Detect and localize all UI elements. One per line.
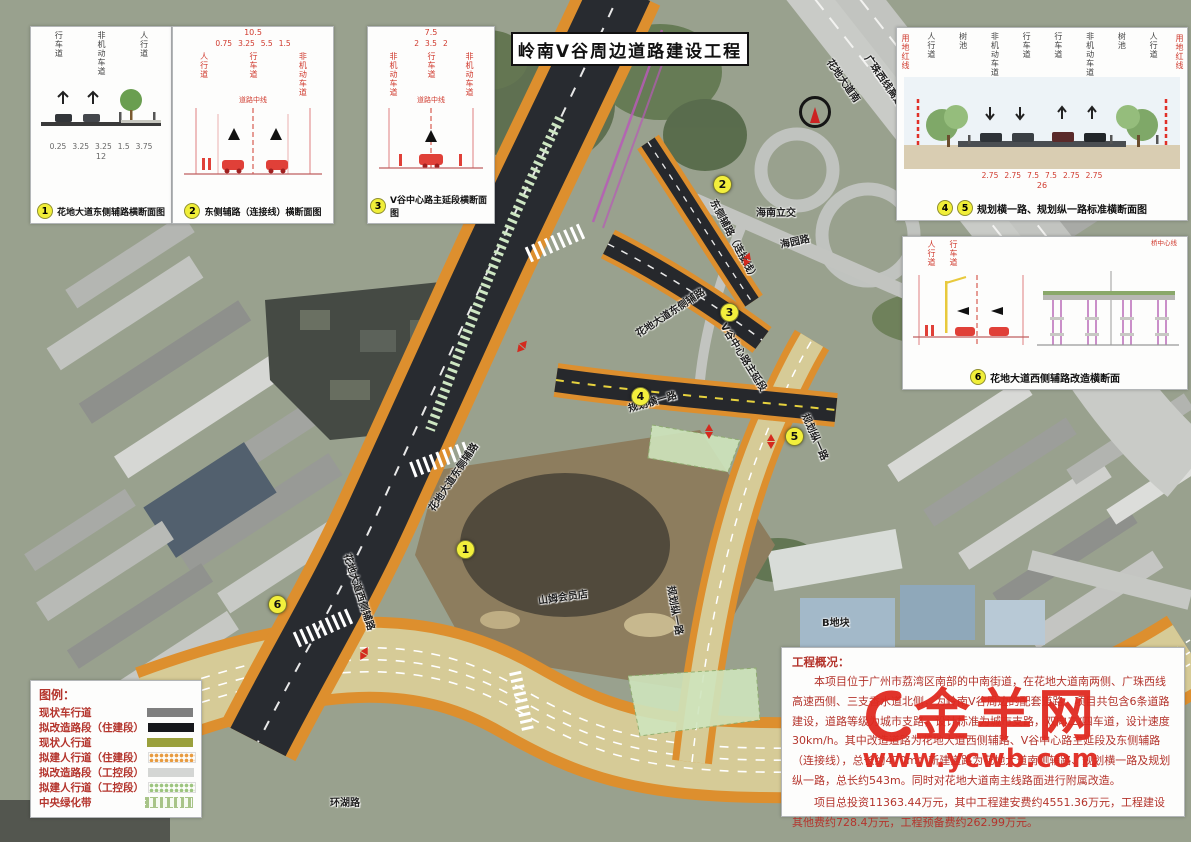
lane-label: 行车道 [1022, 32, 1030, 77]
section6-drawing [911, 267, 1179, 359]
legend-item-label: 现状车行道 [39, 705, 92, 720]
dimension-value: 7.5 [1045, 171, 1057, 180]
lane-label: 人行道 [927, 32, 935, 77]
section3-drawing [375, 104, 487, 178]
road-label: B地块 [822, 614, 850, 629]
diagram-number-badge: 5 [957, 200, 973, 216]
overview-title: 工程概况： [792, 654, 1174, 670]
section2-lane-labels: 人行道行车道非机动车道 [173, 48, 333, 97]
lane-label: 非机动车道 [1086, 32, 1094, 77]
dimension-value: 5.5 [261, 39, 273, 48]
red-arrow-icon [767, 430, 775, 453]
legend-item: 拟建人行道（住建段） [39, 750, 193, 765]
map-marker: 4 [631, 387, 650, 406]
dimension-value: 1.5 [279, 39, 291, 48]
watermark-name: 金羊网 [914, 689, 1100, 745]
lane-label: 行车道 [249, 52, 257, 97]
legend-panel: 图例： 现状车行道 拟改造路段（住建段） 现状人行道 [30, 680, 202, 818]
legend-item: 拟改造路段（住建段） [39, 720, 193, 735]
cross-section-card-45: 用地红线 人行道树池非机动车道行车道行车道非机动车道树池人行道 用地红线 [896, 27, 1188, 221]
dimension-value: 0.25 [50, 142, 67, 151]
diagram-number-badge: 6 [970, 369, 986, 385]
legend-item-label: 拟改造路段（住建段） [39, 720, 144, 735]
legend-item-label: 现状人行道 [39, 735, 92, 750]
cross-section-card-2: 10.5 0.753.255.51.5 人行道行车道非机动车道 道路中线 2 东… [172, 26, 334, 224]
lane-label: 树池 [1117, 32, 1125, 77]
lane-label: 非机动车道 [298, 52, 306, 97]
road-label: 环湖路 [330, 794, 360, 809]
legend-item: 拟建人行道（工控段） [39, 780, 193, 795]
diagram-number-badge: 2 [184, 203, 200, 219]
legend-item-swatch [148, 768, 194, 777]
legend-item: 中央绿化带 [39, 795, 193, 810]
lane-label: 非机动车道 [389, 52, 397, 97]
dimension-value: 0.75 [215, 39, 232, 48]
red-line-label: 用地红线 [1175, 34, 1183, 70]
legend-item: 拟改造路段（工控段） [39, 765, 193, 780]
lane-label: 行车道 [54, 31, 62, 76]
diagram-number-badge: 4 [937, 200, 953, 216]
lane-label: 行车道 [1054, 32, 1062, 77]
legend-item-swatch [147, 738, 193, 747]
legend-item-label: 中央绿化带 [39, 795, 92, 810]
red-arrow-icon [705, 420, 713, 443]
legend-item-label: 拟建人行道（工控段） [39, 780, 144, 795]
section45-drawing [904, 77, 1180, 169]
lane-label: 行车道 [427, 52, 435, 97]
lane-label: 非机动车道 [97, 31, 105, 76]
watermark-logo-icon [862, 688, 914, 746]
legend-item-swatch [148, 782, 196, 793]
diagram-caption: 规划横一路、规划纵一路标准横断面图 [977, 201, 1147, 216]
section45-lane-labels: 人行道树池非机动车道行车道行车道非机动车道树池人行道 [909, 28, 1175, 77]
section45-dimensions: 2.752.757.57.52.752.75 [897, 171, 1187, 180]
dimension-value: 3.75 [136, 142, 153, 151]
section3-dimensions: 23.52 [368, 39, 494, 48]
lane-label: 人行道 [927, 240, 935, 267]
north-arrow-icon [799, 96, 831, 128]
diagram-number-badge: 3 [370, 198, 386, 214]
legend-items: 现状车行道 拟改造路段（住建段） 现状人行道 拟建人行道（住建段） [39, 705, 193, 810]
dimension-value: 2 [443, 39, 448, 48]
section2-total-width: 10.5 [173, 28, 333, 37]
dimension-value: 3.5 [425, 39, 437, 48]
lane-label: 树池 [959, 32, 967, 77]
section3-lane-labels: 非机动车道行车道非机动车道 [368, 48, 494, 97]
road-label: 海南立交 [756, 204, 796, 219]
road-centerline-label: 道路中线 [173, 97, 333, 104]
lane-label: 人行道 [200, 52, 208, 97]
cross-section-card-6: 人行道行车道 桥中心线 [902, 236, 1188, 390]
dimension-value: 7.5 [1027, 171, 1039, 180]
dimension-value: 2.75 [1004, 171, 1021, 180]
lane-label: 非机动车道 [465, 52, 473, 97]
section2-drawing [178, 104, 328, 184]
dimension-value: 3.25 [72, 142, 89, 151]
construction-plan-image: 岭南V谷周边道路建设工程 行车道非机动车道人行道 0.253.253.251.5… [0, 0, 1191, 842]
diagram-caption: V谷中心路主延段横断面图 [390, 193, 492, 219]
diagram-caption: 花地大道东侧辅路横断面图 [57, 205, 165, 218]
road-centerline-label: 道路中线 [368, 97, 494, 104]
section2-dimensions: 0.753.255.51.5 [173, 39, 333, 48]
map-marker: 1 [456, 540, 475, 559]
lane-label: 非机动车道 [990, 32, 998, 77]
section1-dimensions: 0.253.253.251.53.75 [31, 142, 171, 151]
dimension-value: 3.25 [238, 39, 255, 48]
section1-lane-labels: 行车道非机动车道人行道 [31, 27, 171, 76]
map-marker: 2 [713, 175, 732, 194]
legend-item-label: 拟建人行道（住建段） [39, 750, 144, 765]
diagram-number-badge: 1 [37, 203, 53, 219]
diagram-caption: 花地大道西侧辅路改造横断面 [990, 370, 1120, 385]
dimension-value: 2 [414, 39, 419, 48]
cross-section-card-1: 行车道非机动车道人行道 0.253.253.251.53.75 12 1 花地大… [30, 26, 172, 224]
map-marker: 6 [268, 595, 287, 614]
diagram-caption: 东侧辅路（连接线）横断面图 [204, 205, 321, 218]
dimension-value: 3.25 [95, 142, 112, 151]
red-line-label: 用地红线 [901, 34, 909, 70]
lane-label: 人行道 [1149, 32, 1157, 77]
page-title: 岭南V谷周边道路建设工程 [511, 32, 749, 66]
map-marker: 3 [720, 303, 739, 322]
dimension-value: 1.5 [118, 142, 130, 151]
map-marker: 5 [785, 427, 804, 446]
legend-item: 现状车行道 [39, 705, 193, 720]
legend-item: 现状人行道 [39, 735, 193, 750]
legend-item-swatch [147, 708, 193, 717]
section3-total-width: 7.5 [368, 28, 494, 37]
legend-item-swatch [148, 752, 196, 763]
bridge-centerline-label: 桥中心线 [1151, 240, 1177, 267]
section1-total-width: 12 [31, 152, 171, 161]
watermark: 金羊网 www.ycwb.com [862, 688, 1100, 774]
section1-drawing [35, 76, 167, 140]
section45-total-width: 26 [897, 181, 1187, 190]
watermark-url: www.ycwb.com [862, 744, 1100, 774]
legend-item-label: 拟改造路段（工控段） [39, 765, 144, 780]
legend-item-swatch [148, 723, 194, 732]
lane-label: 人行道 [140, 31, 148, 76]
cross-section-card-3: 7.5 23.52 非机动车道行车道非机动车道 道路中线 3 V谷中心路主延段横… [367, 26, 495, 224]
dimension-value: 2.75 [1063, 171, 1080, 180]
dimension-value: 2.75 [1086, 171, 1103, 180]
section6-lane-labels: 人行道行车道 [927, 240, 957, 267]
legend-title: 图例： [39, 686, 193, 703]
legend-item-swatch [145, 797, 193, 808]
dimension-value: 2.75 [982, 171, 999, 180]
lane-label: 行车道 [949, 240, 957, 267]
overview-paragraph: 项目总投资11363.44万元，其中工程建安费约4551.36万元，工程建设其他… [792, 793, 1174, 833]
